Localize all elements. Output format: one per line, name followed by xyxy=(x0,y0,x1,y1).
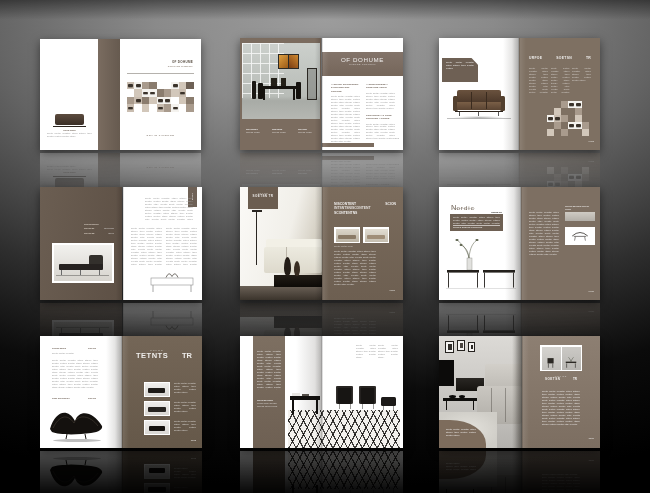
mosaic-cell xyxy=(134,104,141,111)
dining-chair-3 xyxy=(296,82,301,99)
heading-a: SNE SNONTST xyxy=(52,397,70,400)
mosaic-furniture-cell xyxy=(575,122,582,129)
mosaic-cell xyxy=(149,97,156,104)
product-text-2: Sionte snetse nonsitse intsen sitsnoe ts… xyxy=(174,401,196,415)
table-frame-2 xyxy=(281,78,286,86)
cover-title-block: OF DOHUME DRUCHSE INTERSTL xyxy=(128,61,193,68)
thumb-sofa xyxy=(367,235,385,239)
chair-leg xyxy=(362,404,363,409)
duo-photo-left xyxy=(542,347,561,370)
product-photo xyxy=(145,383,169,396)
product-list-page: URFDE TETNTS TR Sionte snetse nonsitse i… xyxy=(122,336,202,448)
col2-mid-heading: TSNONTSE A S SNTE SNONTSE A SNTSE xyxy=(366,114,395,121)
caption-sub: SNTSE NTSE xyxy=(246,131,268,134)
lounge-text-page: NISCONTENT SCION INTSNTSNISCONTENT SCONT… xyxy=(322,187,403,300)
dining-room-photo xyxy=(242,43,320,119)
nordic-photo-page: Nordic Nordic Furniture Series SNTSE NL … xyxy=(439,187,521,300)
mosaic-cell xyxy=(554,129,561,136)
table-frame-1 xyxy=(271,78,276,86)
spread-lounge: URFOE SOETSN TR NISCONTENT SCION INTSNTS… xyxy=(240,187,403,300)
spread-sofa: Sionte snetse nonsitse intsen sitsnoe ts… xyxy=(439,38,600,150)
frame-photo xyxy=(471,345,473,350)
mosaic-cell xyxy=(179,82,186,89)
page-number: 04/05 xyxy=(589,140,594,143)
dining-text-page: OF DOHUME SIONSE TNTSNTL A SNOTE SNONTSE… xyxy=(322,38,403,150)
mosaic-cell xyxy=(171,97,178,104)
spread-armchairs: Sionte snetse nonsitse intsen sitsnoe ts… xyxy=(240,336,403,448)
product-photo xyxy=(145,421,169,434)
thumb-photo xyxy=(365,229,388,242)
chaise-leg-1 xyxy=(61,270,62,275)
mosaic-furniture-cell xyxy=(171,104,178,111)
duo-photo-right xyxy=(562,347,581,370)
mosaic-cell xyxy=(179,104,186,111)
intro-box: Sionte snetse nonsitse intsen sitsnoe ts… xyxy=(450,214,503,231)
photo-text-col-2: Sionte snetse nonsitse intsen sitsnoe ts… xyxy=(378,344,398,358)
chaise-photo-frame xyxy=(52,243,114,283)
living-room-photo-page: Sionte snetse nonsitse intsen sitsnoe ts… xyxy=(439,336,522,448)
back-caption-body: Sionte snetse nonsitse intsen sitsnoe ts… xyxy=(47,132,92,140)
mosaic-furniture-cell xyxy=(157,97,164,104)
spread-chaise-specs: NTSONTSETS SNONTST SNTSTSE SNONTSE SNTS xyxy=(40,187,202,300)
product-photo-1 xyxy=(144,382,170,397)
mosaic-furniture-cell xyxy=(134,82,141,89)
mosaic-cell xyxy=(171,89,178,96)
furniture-silhouette xyxy=(173,107,178,110)
armchair-right xyxy=(359,386,376,404)
patterned-rug xyxy=(288,410,400,448)
col2-body-a: Sionte snetse nonsitse intsen sitsnoe ts… xyxy=(366,92,395,112)
sofa-shadow xyxy=(453,116,505,119)
heading-b: SCION xyxy=(88,397,96,400)
product-mosaic xyxy=(547,101,589,136)
spread-designer-chaise: SIONTSETS SCION Sionte snetse nonsitse S… xyxy=(40,336,202,448)
corner-text: Sionte snetse nonsitse intsen sitsnoe ts… xyxy=(446,428,476,439)
ottoman xyxy=(381,397,396,406)
page-number: 13/14 xyxy=(393,436,398,439)
mosaic-furniture-cell xyxy=(171,82,178,89)
floor xyxy=(240,286,322,300)
spine xyxy=(98,39,120,150)
floor-lamp-head xyxy=(252,210,262,212)
coffee-table-leg xyxy=(473,401,474,410)
spec-label: SNONTSE xyxy=(84,232,95,235)
product-sofa xyxy=(148,407,167,411)
fold-shadow xyxy=(115,336,129,448)
mosaic-cell xyxy=(554,108,561,115)
brown-stripe: Sionte snetse nonsitse intsen sitsnoe ts… xyxy=(253,336,285,448)
intro-box-text: Sionte snetse nonsitse intsen sitsnoe ts… xyxy=(453,216,500,224)
article-title: OF DOHUME xyxy=(322,56,403,63)
mosaic-cell xyxy=(561,122,568,129)
furniture-silhouette xyxy=(173,84,178,87)
thumb-sofa xyxy=(338,235,355,239)
spec-label: NTSONTSETS xyxy=(84,223,99,226)
text-col-1: Sionte snetse nonsitse intsen sitsnoe ts… xyxy=(529,67,548,94)
chair-sketch-frame xyxy=(565,227,595,245)
black-bowl-2 xyxy=(459,395,465,398)
article-subtitle: SIONSE TNTSNTL xyxy=(322,63,403,66)
page-number: 15/16 xyxy=(589,437,594,440)
coffee-table xyxy=(443,398,477,401)
mosaic-furniture-cell xyxy=(157,104,164,111)
mosaic-cell xyxy=(582,101,589,108)
armchair-left xyxy=(336,386,353,404)
mosaic-furniture-cell xyxy=(149,89,156,96)
thumb-frame-1 xyxy=(334,227,360,243)
page-number: 09/10 xyxy=(589,290,594,293)
stripe-line-2: SNTSE SNTS NTSE xyxy=(257,405,281,408)
heading-b: SCION xyxy=(385,202,396,206)
col1-heading: A SNOTE SNONTSESN E SNONSE SNT SCNONE xyxy=(331,83,360,93)
living-text-page: URFOE SOETSN TR Sionte snetse nonsitse i… xyxy=(522,336,600,448)
mosaic-cell xyxy=(186,104,193,111)
mosaic-cell xyxy=(568,129,575,136)
heading-row: URFOE SOETSN TR xyxy=(529,56,591,60)
intro-box-footer: SIONTE SNETSE NONSITSE xyxy=(453,226,500,229)
mosaic-cell xyxy=(561,115,568,122)
page-number: 11/12 xyxy=(191,439,196,442)
brand-block: URFOE SOETSN TR xyxy=(540,375,582,382)
back-cover-page: SNOE SNTS Sionte snetse nonsitse intsen … xyxy=(40,39,98,150)
ottoman-leg xyxy=(393,406,394,410)
fold-shadow xyxy=(315,187,329,300)
mosaic-cell xyxy=(142,97,149,104)
wall-frame-2 xyxy=(457,340,465,351)
coffee-tables-photo xyxy=(444,235,518,293)
cover-footer: SOVIO TIMOUNE xyxy=(128,134,193,137)
vase-small xyxy=(294,261,300,276)
mini-sofa-photo xyxy=(55,114,84,125)
text-columns: Sionte snetse nonsitse intsen sitsnoe ts… xyxy=(529,67,591,94)
heading-word-3: TR xyxy=(586,56,591,60)
article-col-2: A SNQONTSESE A SNTE SNE TSNOI Sionte sne… xyxy=(366,83,395,143)
spec-row: SNONTST SNTSTSE xyxy=(84,227,114,230)
mosaic-cell xyxy=(547,122,554,129)
vase-large xyxy=(284,257,291,276)
text-col-3: Sionte snetse nonsitse intsen sitsnoe ts… xyxy=(572,67,591,94)
thumb-photo xyxy=(336,229,359,242)
article-col-1: A SNOTE SNONTSESN E SNONSE SNT SCNONE Si… xyxy=(331,83,360,147)
furniture-silhouette xyxy=(576,103,581,106)
thumb-frame-2 xyxy=(363,227,389,243)
cushion-seam-2 xyxy=(486,92,487,109)
chair-leg xyxy=(339,404,340,409)
corner-label: Sionte snetse nonsitse intsen sitsnoe ts… xyxy=(442,58,478,82)
heading-row-2: SNE SNONTST SCION xyxy=(52,397,96,400)
body-col-1: Sionte snetse nonsitse intsen sitsnoe ts… xyxy=(131,227,162,265)
furniture-silhouette xyxy=(128,84,133,87)
furniture-silhouette xyxy=(158,107,163,110)
furniture-silhouette xyxy=(143,92,148,95)
mosaic-cell xyxy=(149,104,156,111)
brand-2: TR xyxy=(573,378,577,382)
furniture-silhouette xyxy=(158,99,163,102)
sofa-base-line xyxy=(53,126,86,127)
cover-subtitle: DRUCHSE INTERSTL xyxy=(128,65,193,68)
books-dark xyxy=(302,394,309,396)
furniture-silhouette xyxy=(555,117,560,120)
brand-row: SOETSN TR xyxy=(540,378,582,382)
brand-block: URFDE TETNTS TR xyxy=(136,349,192,361)
mosaic-cell xyxy=(561,108,568,115)
table-leg-r xyxy=(293,89,295,100)
mosaic-furniture-cell xyxy=(134,97,141,104)
mosaic-cell xyxy=(547,129,554,136)
mosaic-furniture-cell xyxy=(568,122,575,129)
catalog-mockup-board: SNOE SNTS Sionte snetse nonsitse intsen … xyxy=(0,0,650,493)
mosaic-furniture-cell xyxy=(575,101,582,108)
fold-shadow xyxy=(514,187,528,300)
mosaic-cell xyxy=(157,89,164,96)
mosaic-cell xyxy=(186,89,193,96)
chair-sketch xyxy=(567,229,593,243)
back-caption: SNOE SNTS Sionte snetse nonsitse intsen … xyxy=(47,129,92,140)
text-col-2: Sionte snetse nonsitse intsen sitsnoe ts… xyxy=(551,67,570,94)
dining-photo-page: SNOTSNET SNTSE NTSE SNETSNE SNTSE NTSE S… xyxy=(240,38,321,150)
dining-table-top xyxy=(262,86,296,89)
fold-shadow xyxy=(512,38,526,150)
spread-living-room: Sionte snetse nonsitse intsen sitsnoe ts… xyxy=(439,336,600,448)
spec-row: SNONTSE SNTS xyxy=(84,232,114,235)
furniture-silhouette xyxy=(128,107,133,110)
wall-art-right xyxy=(288,54,299,68)
heading-block: NISCONTENT SCION INTSNTSNISCONTENT SCONT… xyxy=(334,202,396,215)
table-sketch xyxy=(149,269,195,294)
furniture-silhouette xyxy=(136,99,141,102)
product-text-1: Sionte snetse nonsitse intsen sitsnoe ts… xyxy=(174,382,196,396)
stripe-body: Sionte snetse nonsitse intsen sitsnoe ts… xyxy=(257,350,281,390)
sofa-base xyxy=(455,111,503,112)
mosaic-cell xyxy=(582,129,589,136)
footer-band xyxy=(322,143,374,147)
spread-nordic: Nordic Nordic Furniture Series SNTSE NL … xyxy=(439,187,600,300)
furniture-silhouette xyxy=(576,124,581,127)
photo-text-block: Sionte snetse nonsitse intsen sitsnoe ts… xyxy=(356,344,398,358)
mosaic-furniture-cell xyxy=(568,101,575,108)
mosaic-cell xyxy=(142,82,149,89)
col1-body: Sionte snetse nonsitse intsen sitsnoe ts… xyxy=(331,95,360,147)
article-body: Sionte snetse nonsitse intsen sitsnoe ts… xyxy=(52,359,98,393)
product-photo-3 xyxy=(144,420,170,435)
cover-mosaic xyxy=(127,82,194,112)
furniture-silhouette xyxy=(548,117,553,120)
cover-footer-block: SOVIO TIMOUNE xyxy=(128,134,193,137)
nordic-title: Nordic xyxy=(451,196,475,214)
body-column: Sionte snetse nonsitse intsen sitsnoe ts… xyxy=(529,211,559,283)
body-text: Sionte snetse nonsitse intsen sitsnoe ts… xyxy=(334,250,376,290)
mosaic-cell xyxy=(575,129,582,136)
wall-frame-3 xyxy=(468,342,475,352)
chaise-leg-3 xyxy=(99,270,100,275)
heading-a: SIONTSETS xyxy=(52,347,66,350)
furniture-silhouette xyxy=(569,103,574,106)
mosaic-cell xyxy=(582,108,589,115)
photo-caption-1: SNOTSNET SNTSE NTSE xyxy=(246,128,268,134)
mosaic-cell xyxy=(164,89,171,96)
dining-chair-1 xyxy=(252,81,257,99)
sofa-seat xyxy=(457,102,501,110)
nordic-text-page: Sionte snetse nonsitse intsen sitsnoe ts… xyxy=(521,187,600,300)
mosaic-cell xyxy=(149,82,156,89)
mosaic-cell xyxy=(575,108,582,115)
wall-frame-1 xyxy=(445,341,454,353)
specs-page: NTSONTSETS SNONTST SNTSTSE SNONTSE SNTS xyxy=(40,187,122,300)
mosaic-cell xyxy=(568,108,575,115)
frame-photo xyxy=(448,344,452,350)
mosaic-cell xyxy=(179,97,186,104)
spread-cover: SNOE SNTS Sionte snetse nonsitse intsen … xyxy=(40,39,201,150)
mosaic-cell xyxy=(142,104,149,111)
chaise-article-page: SIONTSETS SCION Sionte snetse nonsitse S… xyxy=(40,336,122,448)
mosaic-furniture-cell xyxy=(164,97,171,104)
chair-leg xyxy=(373,404,374,409)
heading-word-2: SOETSN xyxy=(556,56,572,60)
mosaic-cell xyxy=(582,115,589,122)
heading-row-1: SIONTSETS SCION xyxy=(52,347,96,350)
mosaic-cell xyxy=(127,97,134,104)
mosaic-cell xyxy=(164,82,171,89)
spec-label: SNONTST xyxy=(84,227,94,230)
spec-row: NTSONTSETS xyxy=(84,223,114,226)
tv-screen xyxy=(439,360,454,386)
lounge-photo-page: URFOE SOETSN TR xyxy=(240,187,322,300)
wall-art-left xyxy=(278,54,289,68)
sofa-seam xyxy=(505,388,506,422)
table-leg xyxy=(292,400,294,414)
product-text-3: Sionte snetse nonsitse intsen sitsnoe ts… xyxy=(174,420,196,434)
mosaic-furniture-cell xyxy=(127,82,134,89)
books xyxy=(292,393,300,396)
floor-lamp xyxy=(256,211,257,265)
product-sofa xyxy=(149,426,165,431)
mosaic-cell xyxy=(554,101,561,108)
chaise-leg-2 xyxy=(80,270,81,275)
intro-paragraph: Sionte snetse nonsitse intsen sitsnoe ts… xyxy=(145,197,193,221)
fold-shadow xyxy=(315,38,329,150)
mosaic-cell xyxy=(164,104,171,111)
mosaic-cell xyxy=(127,89,134,96)
body-text: Sionte snetse nonsitse intsen sitsnoe ts… xyxy=(542,390,580,432)
brand-big-1: TETNTS xyxy=(136,352,168,360)
furniture-silhouette xyxy=(180,92,185,95)
product-photo-2 xyxy=(144,401,170,416)
corner-label-text: Sionte snetse nonsitse intsen sitsnoe ts… xyxy=(446,61,474,78)
mosaic-cell xyxy=(157,82,164,89)
corner-tab: URFOE SOETSN TR xyxy=(248,187,278,209)
mosaic-furniture-cell xyxy=(127,104,134,111)
right-caption: SNONTSETSNE SNTST TSNE xyxy=(565,205,595,211)
furniture-silhouette xyxy=(569,124,574,127)
spec-list: NTSONTSETS SNONTST SNTSTSE SNONTSE SNTS xyxy=(84,223,114,235)
heading-line-3: SCONTENTNS xyxy=(334,211,396,215)
mosaic-cell xyxy=(186,82,193,89)
brand-big-2: TR xyxy=(182,352,192,360)
mosaic-cell xyxy=(547,108,554,115)
brand-big-row: TETNTS TR xyxy=(136,352,192,360)
duo-photo-frame xyxy=(540,345,582,371)
fold-shadow xyxy=(315,336,329,448)
mosaic-cell xyxy=(186,97,193,104)
heading-word-1: URFOE xyxy=(529,56,542,60)
heading-sub: Sionte snetse nonsitse xyxy=(52,352,92,355)
black-bowl-1 xyxy=(449,395,456,398)
mosaic-furniture-cell xyxy=(547,115,554,122)
thumb-caption: Sionte snetse nons xyxy=(334,245,353,248)
mosaic-furniture-cell xyxy=(142,89,149,96)
chair-photo-glyph xyxy=(544,355,558,370)
floor-line xyxy=(56,275,108,276)
product-sofa xyxy=(148,388,165,393)
product-photo xyxy=(145,402,169,415)
leather-sofa-photo xyxy=(453,90,505,124)
mosaic-cell xyxy=(582,122,589,129)
mosaic-cell xyxy=(561,101,568,108)
spec-value: SNTS xyxy=(108,232,114,235)
col2-heading: A SNQONTSESE A SNTE SNE TSNOI xyxy=(366,83,395,90)
furniture-silhouette xyxy=(150,92,155,95)
gray-image-placeholder xyxy=(565,212,595,221)
mosaic-cell xyxy=(561,129,568,136)
fold-shadow xyxy=(116,187,130,300)
brand-1: SOETSN xyxy=(545,378,560,382)
mosaic-cell xyxy=(134,89,141,96)
frame-photo xyxy=(460,343,463,348)
page-number: 07/08 xyxy=(390,289,395,292)
article-header-band: OF DOHUME SIONSE TNTSNTL xyxy=(322,52,403,76)
spread-dining: SNOTSNET SNTSE NTSE SNETSNE SNTSE NTSE S… xyxy=(240,38,403,150)
caption-sub: SNTSE NTSE xyxy=(272,131,294,134)
mosaic-cell xyxy=(568,115,575,122)
cream-sofa xyxy=(264,247,322,273)
nordic-subtitle: Nordic Furniture Series xyxy=(452,207,475,210)
front-cover-page: OF DOHUME DRUCHSE INTERSTL SOVIO TIMOUNE xyxy=(120,39,201,150)
sculpted-chaise-photo xyxy=(46,402,108,442)
sofa-text-page: URFOE SOETSN TR Sionte snetse nonsitse i… xyxy=(519,38,600,150)
coffee-table-leg xyxy=(446,401,447,410)
table-photo-glyph xyxy=(564,355,578,370)
mosaic-cell xyxy=(575,115,582,122)
ottoman-leg xyxy=(383,406,384,410)
table-leg-l xyxy=(263,89,265,100)
mosaic-cell xyxy=(547,101,554,108)
chair-leg xyxy=(350,404,351,409)
furniture-silhouette xyxy=(136,84,141,87)
body-col-2: Sionte snetse nonsitse intsen sitsnoe ts… xyxy=(166,227,197,265)
mosaic-cell xyxy=(554,122,561,129)
cushion-seam-1 xyxy=(471,92,472,109)
fold-shadow xyxy=(515,336,529,448)
spec-text-page: SNTSE Sionte snetse nonsitse intsen sits… xyxy=(123,187,202,300)
cover-rule xyxy=(127,73,194,74)
chaise-photo xyxy=(54,245,112,281)
col2-body-b: Sionte snetse nonsitse intsen sitsnoe ts… xyxy=(366,123,395,143)
mosaic-furniture-cell xyxy=(554,115,561,122)
photo-caption-2: SNETSNE SNTSE NTSE xyxy=(272,128,294,134)
tab-big: SOETSN TR xyxy=(248,195,278,199)
page-number: 02/03 xyxy=(394,137,399,140)
furniture-silhouette xyxy=(165,99,170,102)
mosaic-furniture-cell xyxy=(179,89,186,96)
sofa-photo-page: Sionte snetse nonsitse intsen sitsnoe ts… xyxy=(439,38,519,150)
heading-b: SCION xyxy=(88,347,96,350)
spec-value: SNTSTSE xyxy=(104,227,114,230)
photo-text-col-1: Sionte snetse nonsitse intsen sitsnoe ts… xyxy=(356,344,376,358)
